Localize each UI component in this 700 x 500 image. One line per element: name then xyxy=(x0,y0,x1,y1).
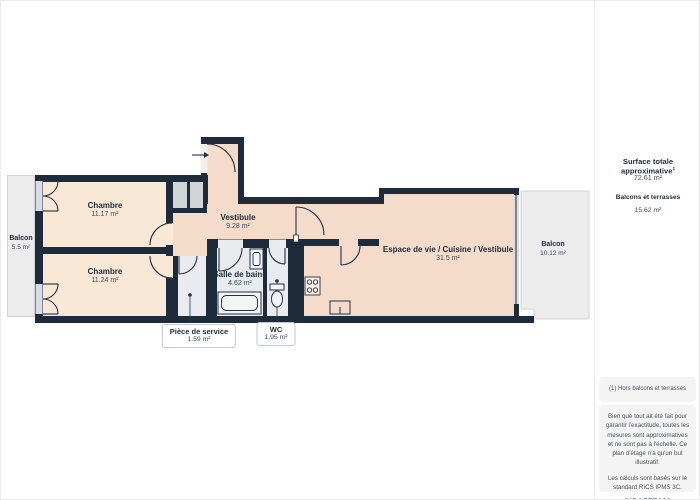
toilet-icon xyxy=(270,284,284,307)
ceiling-light-dot-icon xyxy=(188,293,192,297)
footnote-marker: 1 xyxy=(672,166,675,171)
balcony-right xyxy=(521,191,589,319)
legal-box: Bien que tout ait été fait pour garantir… xyxy=(599,405,696,492)
door-jamb xyxy=(294,235,299,242)
balconies-value: 15.62 m² xyxy=(595,207,700,214)
callout-area: 1.95 m² xyxy=(264,334,287,342)
balconies-label: Balcons et terrasses xyxy=(595,194,700,201)
callout-name: WC xyxy=(264,325,287,334)
footnote-text: (1) Hors balcons et terrasses xyxy=(609,386,686,392)
callout-piece-de-service: Pièce de service 1.59 m² xyxy=(162,324,236,348)
standard-text: Les calculs sont basés sur le standard R… xyxy=(604,474,691,493)
info-sidebar: Surface totale approximative1 72.61 m² B… xyxy=(594,1,700,500)
total-surface-value: 72.61 m² xyxy=(595,173,700,182)
washbasin-icon xyxy=(250,249,263,269)
bathtub-icon xyxy=(218,292,261,314)
disclaimer-text: Bien que tout ait été fait pour garantir… xyxy=(604,412,691,468)
footnote-box: (1) Hors balcons et terrasses xyxy=(599,377,696,402)
callout-wc: WC 1.95 m² xyxy=(256,322,295,346)
floorplan-page: Balcon 5.5 m² Chambre 11.17 m² Chambre 1… xyxy=(0,0,700,500)
callout-name: Pièce de service xyxy=(170,327,228,336)
ceiling-light-dot-icon xyxy=(275,279,279,283)
stove-icon xyxy=(305,277,320,295)
callout-area: 1.59 m² xyxy=(170,336,228,344)
balcony-left xyxy=(8,176,35,317)
